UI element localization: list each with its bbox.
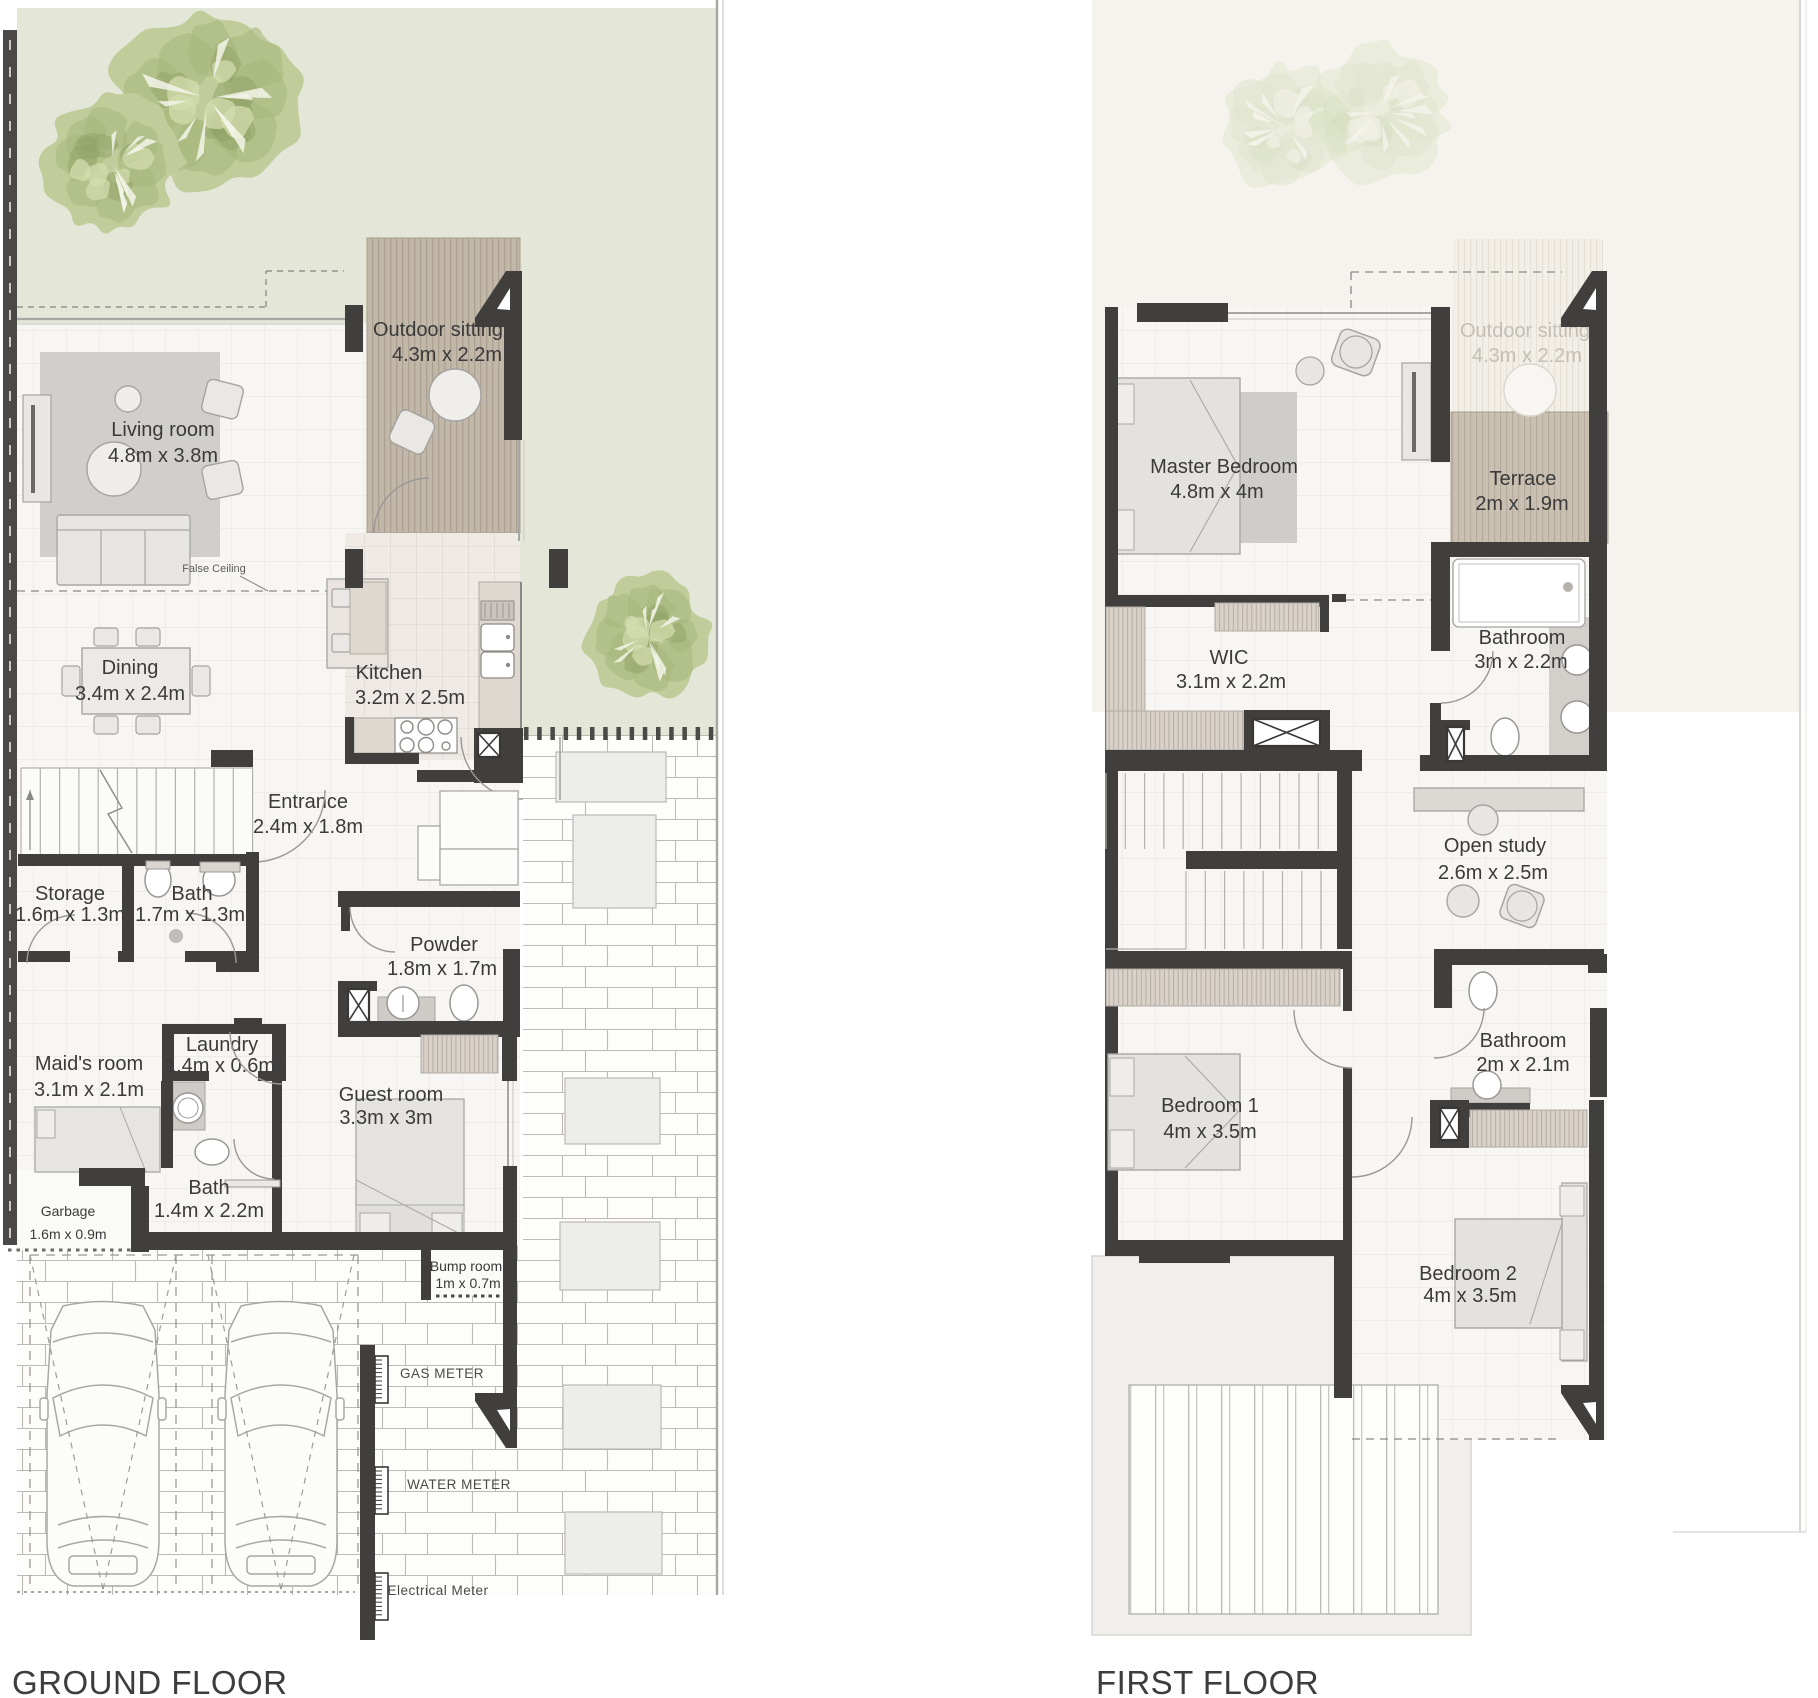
svg-text:1m x 0.7m: 1m x 0.7m <box>435 1275 500 1291</box>
svg-text:Guest room: Guest room <box>339 1084 443 1106</box>
svg-text:False Ceiling: False Ceiling <box>182 563 246 575</box>
svg-text:Maid's room: Maid's room <box>35 1053 143 1075</box>
svg-text:2m x 2.1m: 2m x 2.1m <box>1476 1054 1569 1076</box>
svg-text:4.3m x 2.2m: 4.3m x 2.2m <box>1472 345 1582 367</box>
svg-text:Laundry: Laundry <box>186 1034 258 1056</box>
svg-text:Garbage: Garbage <box>41 1203 96 1219</box>
svg-text:Powder: Powder <box>410 934 478 956</box>
svg-text:1.4m x 0.6m: 1.4m x 0.6m <box>165 1055 275 1077</box>
svg-text:1.6m x 1.3m: 1.6m x 1.3m <box>15 904 125 926</box>
svg-text:2.6m x 2.5m: 2.6m x 2.5m <box>1438 862 1548 884</box>
svg-text:Bump room: Bump room <box>430 1258 502 1274</box>
svg-text:3.1m x 2.1m: 3.1m x 2.1m <box>34 1079 144 1101</box>
svg-text:Terrace: Terrace <box>1490 468 1557 490</box>
svg-text:4.3m x 2.2m: 4.3m x 2.2m <box>392 344 502 366</box>
svg-text:Bath: Bath <box>171 883 212 905</box>
svg-text:Living room: Living room <box>111 419 214 441</box>
svg-text:Electrical Meter: Electrical Meter <box>387 1583 488 1598</box>
svg-text:Entrance: Entrance <box>268 791 348 813</box>
svg-text:1.8m x 1.7m: 1.8m x 1.7m <box>387 958 497 980</box>
svg-text:2.4m x 1.8m: 2.4m x 1.8m <box>253 816 363 838</box>
svg-text:WIC: WIC <box>1210 647 1249 669</box>
svg-text:Bedroom 2: Bedroom 2 <box>1419 1263 1517 1285</box>
svg-text:1.6m x 0.9m: 1.6m x 0.9m <box>29 1226 106 1242</box>
svg-text:1.4m x 2.2m: 1.4m x 2.2m <box>154 1200 264 1222</box>
svg-text:WATER METER: WATER METER <box>407 1477 511 1492</box>
svg-text:3.2m x 2.5m: 3.2m x 2.5m <box>355 687 465 709</box>
svg-text:FIRST FLOOR: FIRST FLOOR <box>1096 1664 1319 1698</box>
svg-text:Master Bedroom: Master Bedroom <box>1150 456 1298 478</box>
svg-text:2m x 1.9m: 2m x 1.9m <box>1475 493 1568 515</box>
svg-text:Open study: Open study <box>1444 835 1546 857</box>
svg-text:Bedroom 1: Bedroom 1 <box>1161 1095 1259 1117</box>
svg-text:4m x 3.5m: 4m x 3.5m <box>1423 1285 1516 1307</box>
svg-text:4.8m x 4m: 4.8m x 4m <box>1170 481 1263 503</box>
svg-text:1.7m x 1.3m: 1.7m x 1.3m <box>135 904 245 926</box>
svg-text:3m x 2.2m: 3m x 2.2m <box>1474 651 1567 673</box>
svg-text:Bathroom: Bathroom <box>1479 627 1566 649</box>
svg-text:Storage: Storage <box>35 883 105 905</box>
svg-text:3.3m x 3m: 3.3m x 3m <box>339 1107 432 1129</box>
svg-text:Bath: Bath <box>188 1177 229 1199</box>
svg-text:GROUND FLOOR: GROUND FLOOR <box>12 1664 288 1698</box>
svg-text:3.1m x 2.2m: 3.1m x 2.2m <box>1176 671 1286 693</box>
svg-text:4m x 3.5m: 4m x 3.5m <box>1163 1121 1256 1143</box>
svg-text:Kitchen: Kitchen <box>356 662 423 684</box>
svg-text:Dining: Dining <box>102 657 159 679</box>
svg-text:4.8m x 3.8m: 4.8m x 3.8m <box>108 445 218 467</box>
svg-text:Bathroom: Bathroom <box>1480 1030 1567 1052</box>
svg-text:3.4m x 2.4m: 3.4m x 2.4m <box>75 683 185 705</box>
svg-text:GAS METER: GAS METER <box>400 1366 484 1381</box>
